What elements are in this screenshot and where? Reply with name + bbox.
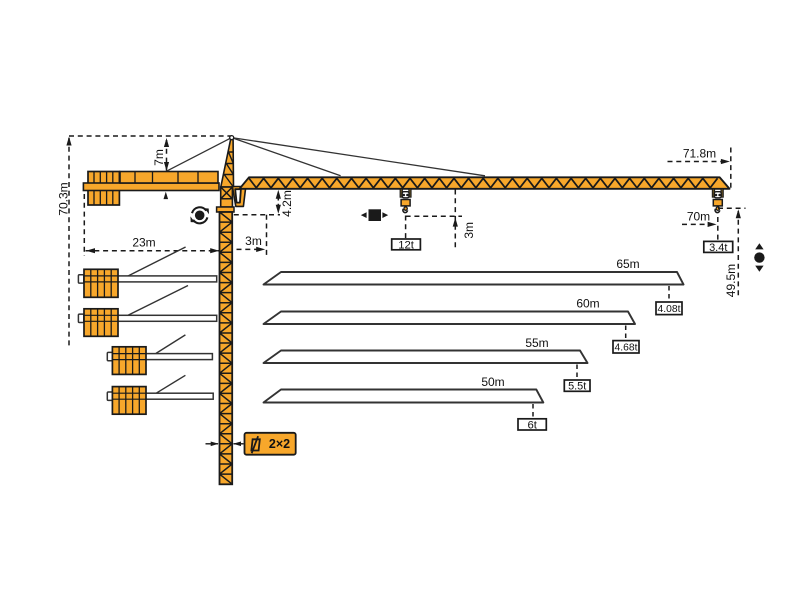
svg-text:23m: 23m (132, 236, 155, 250)
svg-text:50m: 50m (481, 375, 504, 389)
svg-text:65m: 65m (616, 257, 639, 271)
svg-text:3.4t: 3.4t (709, 242, 727, 254)
svg-text:12t: 12t (398, 239, 415, 251)
svg-text:60m: 60m (576, 297, 599, 311)
svg-text:55m: 55m (525, 336, 548, 350)
svg-text:7m: 7m (152, 149, 166, 166)
svg-text:3m: 3m (245, 234, 262, 248)
svg-text:4.68t: 4.68t (615, 343, 638, 354)
svg-text:4.08t: 4.08t (658, 304, 681, 315)
svg-text:4.2m: 4.2m (280, 190, 294, 217)
svg-text:2×2: 2×2 (269, 437, 290, 451)
svg-text:6t: 6t (527, 419, 537, 431)
svg-text:71.8m: 71.8m (683, 147, 716, 161)
svg-text:70m: 70m (687, 210, 710, 224)
svg-text:3m: 3m (462, 222, 476, 239)
svg-text:49.5m: 49.5m (724, 264, 738, 297)
svg-text:70.3m: 70.3m (57, 182, 71, 215)
svg-text:5.5t: 5.5t (568, 381, 586, 393)
